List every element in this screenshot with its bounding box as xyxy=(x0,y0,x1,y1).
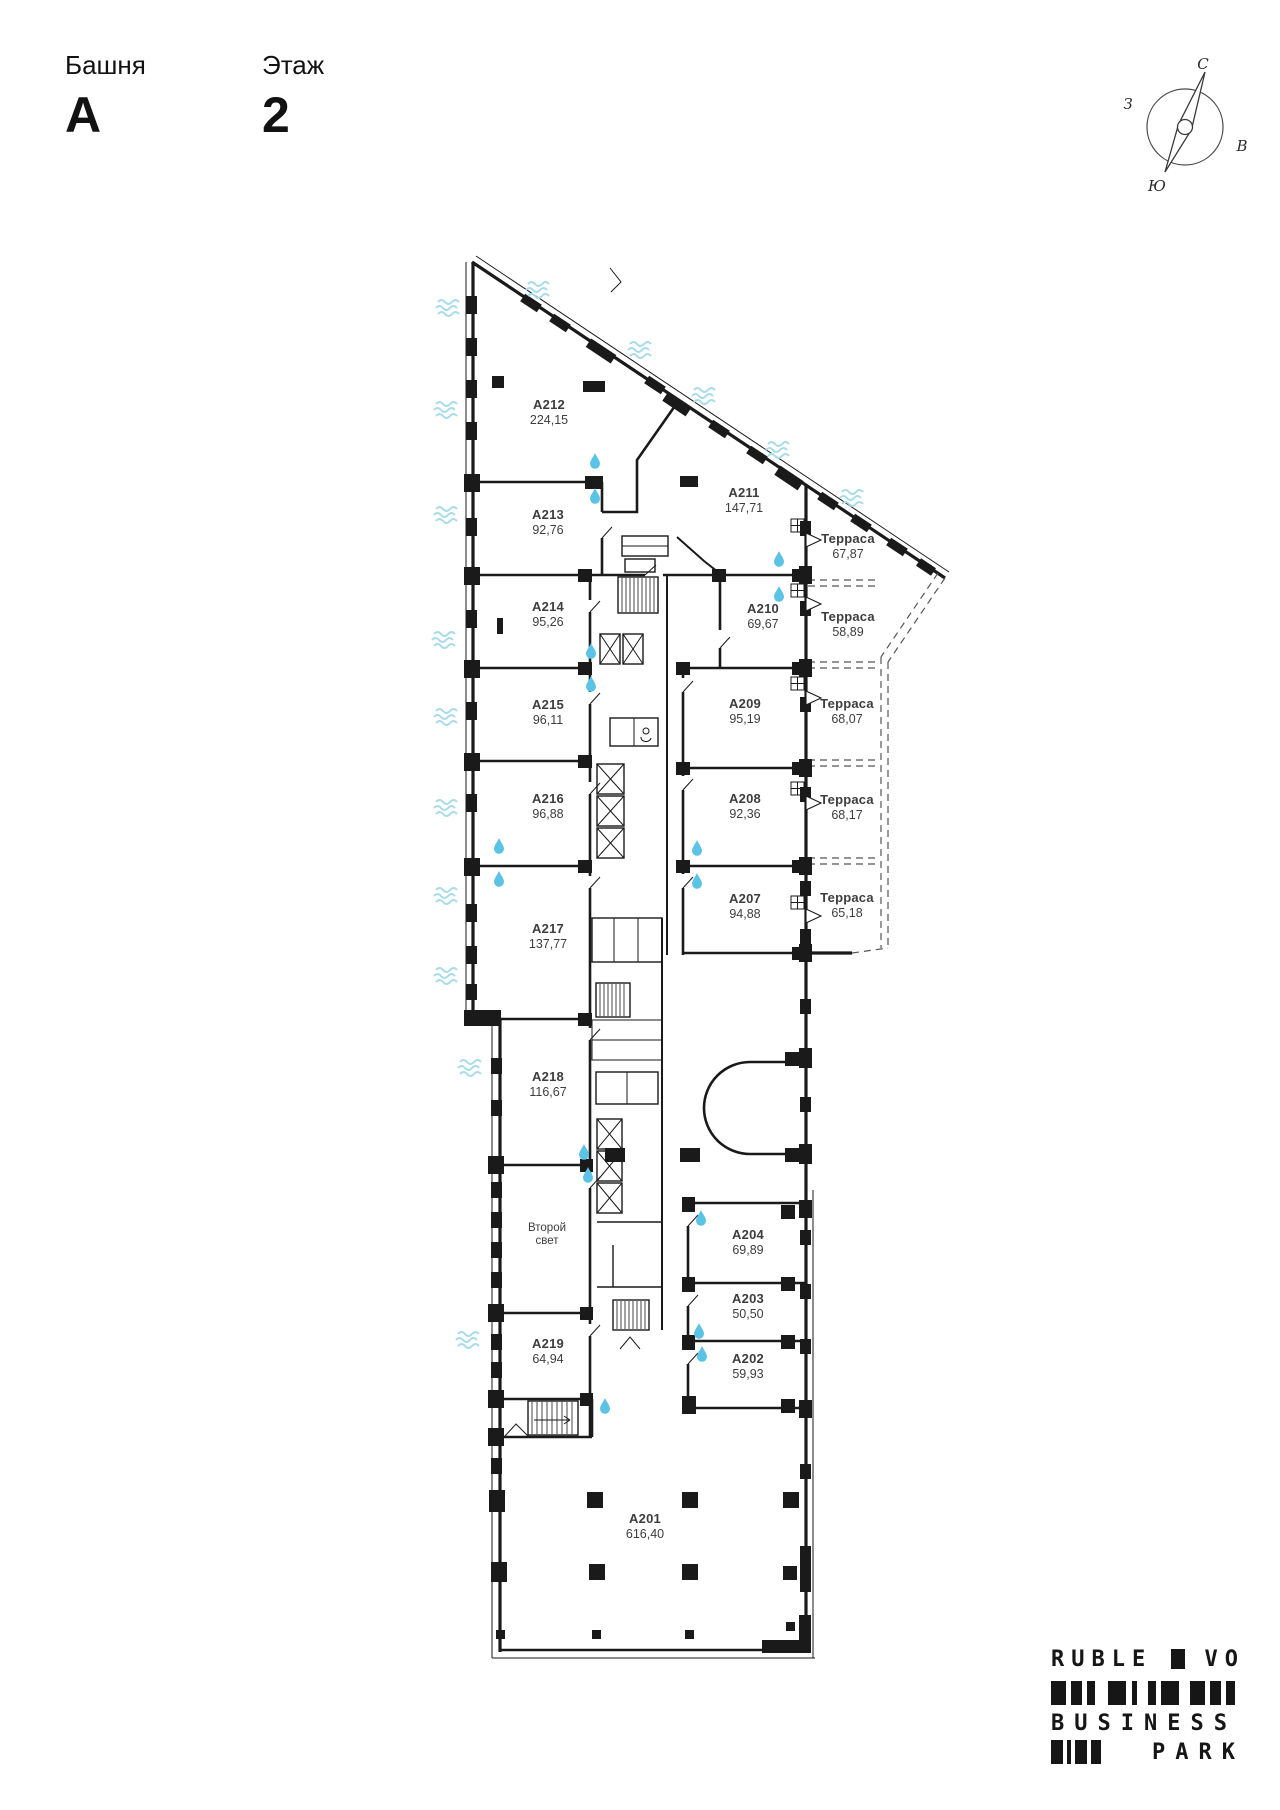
logo-word-park: PARK xyxy=(1152,1740,1245,1765)
terrace-label-1: Терраса67,87 xyxy=(821,532,875,561)
room-label-a201: A201616,40 xyxy=(626,1512,664,1541)
room-label-a219: A21964,94 xyxy=(532,1337,564,1366)
room-label-a210: A21069,67 xyxy=(747,602,779,631)
room-label-a203: A20350,50 xyxy=(732,1292,764,1321)
room-label-a204: A20469,89 xyxy=(732,1228,764,1257)
logo-barcode-row xyxy=(1051,1681,1245,1705)
room-label-a207: A20794,88 xyxy=(729,892,761,921)
floor-label: Этаж xyxy=(262,50,324,81)
rublevo-business-park-logo: RUBLE VO BUSINESS PARK xyxy=(1051,1646,1245,1764)
terrace-label-2: Терраса58,89 xyxy=(821,610,875,639)
terrace-label-3: Терраса68,07 xyxy=(820,697,874,726)
room-label-a208: A20892,36 xyxy=(729,792,761,821)
room-label-a212: A212224,15 xyxy=(530,398,568,427)
compass-icon xyxy=(1095,45,1275,205)
outer-walls xyxy=(464,256,949,1658)
compass-north-label: С xyxy=(1197,55,1208,73)
logo-word-business: BUSINESS xyxy=(1051,1711,1245,1735)
room-label-a214: A21495,26 xyxy=(532,600,564,629)
room-label-a213: A21392,76 xyxy=(532,508,564,537)
compass-east-label: В xyxy=(1236,137,1247,155)
room-label-a216: A21696,88 xyxy=(532,792,564,821)
logo-line-1: RUBLE VO xyxy=(1051,1646,1245,1672)
core-elements xyxy=(505,268,718,1436)
room-label-a202: A20259,93 xyxy=(732,1352,764,1381)
logo-word-ruble: RUBLE xyxy=(1051,1647,1152,1672)
logo-line-4: PARK xyxy=(1051,1740,1245,1764)
tower-value: A xyxy=(65,86,101,144)
logo-block-icon xyxy=(1171,1649,1185,1669)
second-light-label: Второйсвет xyxy=(528,1222,566,1248)
logo-barcode-row-2 xyxy=(1051,1740,1101,1764)
room-label-a217: A217137,77 xyxy=(529,922,567,951)
floor-plan-page: Башня A Этаж 2 С З В Ю A212224,15 A21392… xyxy=(0,0,1280,1810)
room-label-a215: A21596,11 xyxy=(532,698,564,727)
compass-west-label: З xyxy=(1123,95,1132,113)
terrace-label-4: Терраса68,17 xyxy=(820,793,874,822)
room-label-a218: A218116,67 xyxy=(529,1070,566,1099)
floor-value: 2 xyxy=(262,86,290,144)
room-label-a209: A20995,19 xyxy=(729,697,761,726)
terrace-label-5: Терраса65,18 xyxy=(820,891,874,920)
room-label-a211: A211147,71 xyxy=(725,486,763,515)
door-openings xyxy=(590,527,730,1364)
logo-word-vo: VO xyxy=(1204,1647,1245,1672)
tower-label: Башня xyxy=(65,50,146,81)
compass-south-label: Ю xyxy=(1148,177,1166,195)
